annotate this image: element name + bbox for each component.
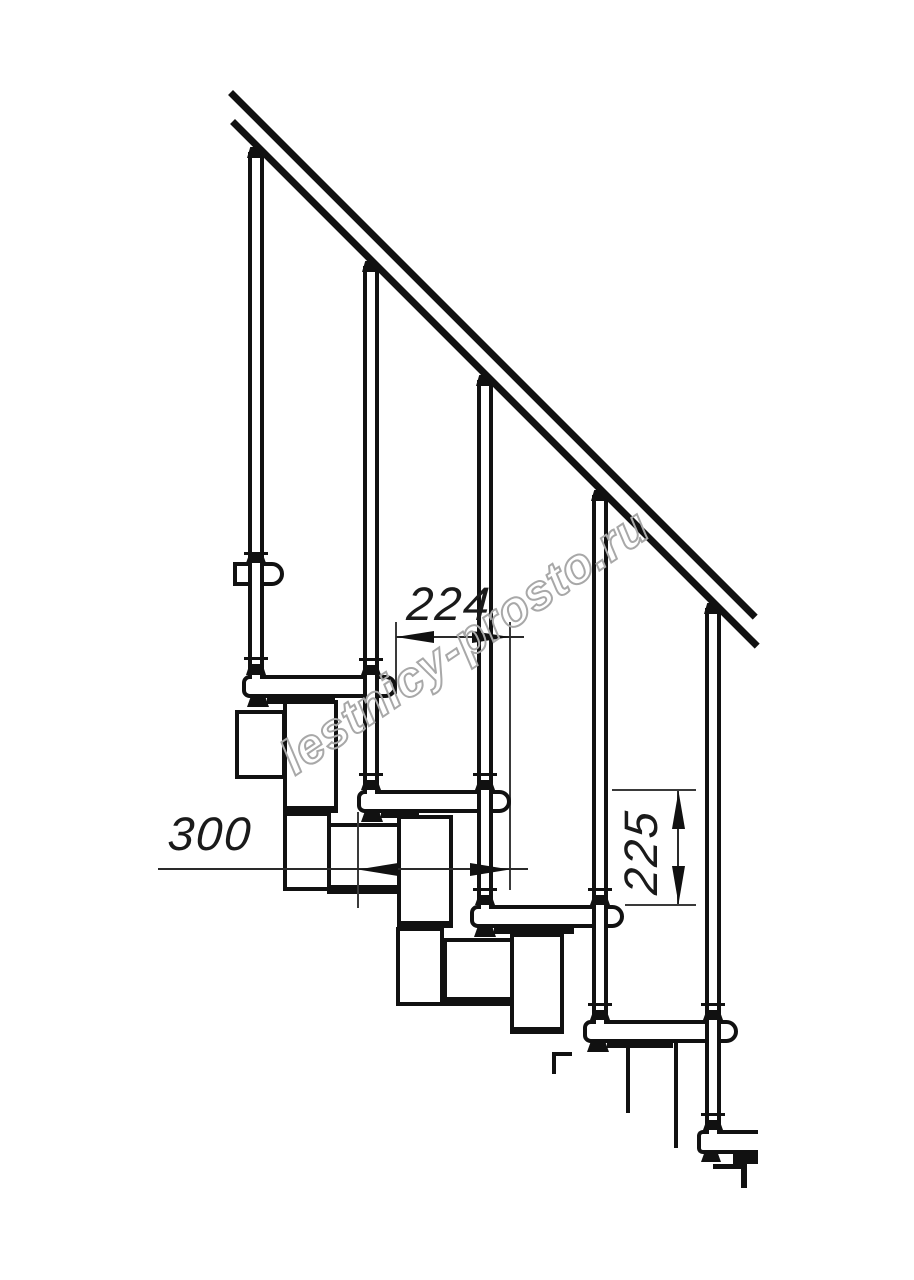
module-tube-1 (283, 700, 338, 813)
baluster-joint-tick (473, 773, 497, 776)
module-bracket-2 (283, 812, 331, 891)
baluster-5 (705, 608, 721, 1134)
tread-connector-strip (733, 1152, 758, 1164)
baluster-joint-tick (244, 657, 268, 660)
dimension-label-300: 300 (166, 806, 254, 861)
baluster-2 (363, 266, 379, 794)
baluster-joint-tick (359, 658, 383, 661)
bottom-step-line (741, 1164, 747, 1188)
baluster-joint-tick (588, 1003, 612, 1006)
module-tube-2 (397, 815, 453, 928)
baluster-joint-tick (701, 1113, 725, 1116)
module-box-2 (327, 823, 408, 894)
extension-line (509, 622, 511, 890)
tread-connector-strip (494, 926, 574, 934)
module-box-4-partial (552, 1052, 556, 1074)
module-tube-4-left-edge (626, 1046, 630, 1113)
baluster-joint-tick (473, 888, 497, 891)
tread-connector-strip (267, 696, 335, 704)
module-tube-4-right-edge (674, 1043, 678, 1148)
baluster-joint-tick (701, 1003, 725, 1006)
staircase-technical-drawing: 224 300 225 lestnicy-prosto.ru (0, 0, 914, 1280)
tread-connector-strip (607, 1041, 673, 1048)
module-bracket-top-1 (235, 710, 286, 779)
dimension-label-224: 224 (405, 576, 493, 631)
arrowhead-left-icon (396, 631, 434, 643)
extension-line (357, 812, 359, 908)
module-bracket-3 (396, 927, 444, 1006)
baluster-joint-tick (588, 888, 612, 891)
baluster-1 (248, 152, 264, 679)
arrowhead-down-icon (672, 866, 685, 904)
dimension-label-225: 225 (616, 770, 666, 933)
baluster-3 (477, 380, 493, 909)
baluster-4 (592, 495, 608, 1024)
baluster-joint-tick (359, 773, 383, 776)
arrowhead-up-icon (672, 791, 685, 829)
module-tube-3 (510, 933, 564, 1034)
handrail-lower-line (230, 119, 760, 649)
tread-connector-strip (381, 811, 419, 818)
